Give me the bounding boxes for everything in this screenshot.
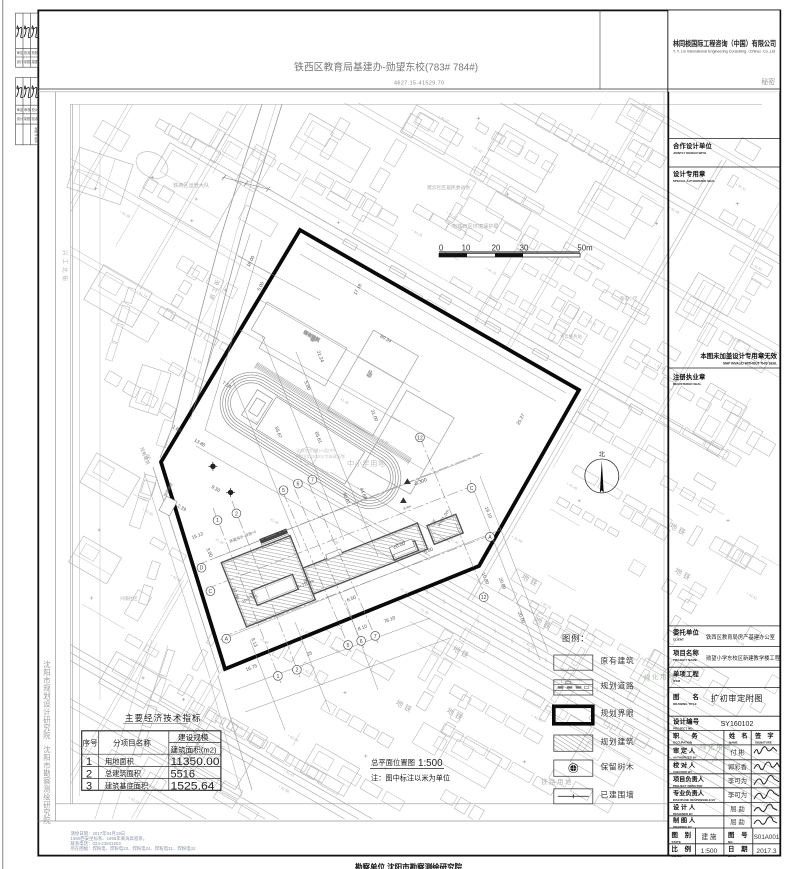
svg-text:注：图中标注以米为单位: 注：图中标注以米为单位 [371,774,450,783]
svg-text:批准: 批准 [24,50,31,55]
svg-text:审定: 审定 [17,50,24,55]
svg-text:院: 院 [43,816,51,825]
svg-text:校核: 校核 [32,50,39,55]
svg-text:分项目名称: 分项目名称 [113,738,151,748]
svg-text:郭彩香: 郭彩香 [728,762,748,771]
svg-text:20: 20 [492,244,501,253]
svg-text:SY160102: SY160102 [721,721,754,728]
svg-text:设 计 人: 设 计 人 [673,804,696,812]
svg-text:扩初审定附图: 扩初审定附图 [711,693,763,703]
svg-text:CLIENT: CLIENT [673,637,684,641]
svg-text:总建筑面积: 总建筑面积 [105,769,141,778]
svg-text:姓 名: 姓 名 [728,732,748,740]
svg-text:市铁西区环境保护局: 市铁西区环境保护局 [452,222,499,230]
svg-text:绿化用地: 绿化用地 [644,672,676,681]
svg-text:ITEM: ITEM [673,679,681,683]
svg-text:规划界限: 规划界限 [601,708,635,718]
svg-text:建设规模: 建设规模 [178,732,209,742]
svg-text:7: 7 [374,634,377,640]
svg-text:制 图 人: 制 图 人 [673,816,696,824]
svg-text:DISCIPLINE RESPONSIBLE BY: DISCIPLINE RESPONSIBLE BY [673,798,716,802]
svg-text:制图: 制图 [24,59,31,64]
svg-text:李可为: 李可为 [728,776,747,785]
svg-text:6: 6 [296,482,299,488]
svg-text:审 定 人: 审 定 人 [673,747,696,755]
svg-text:5516: 5516 [171,768,195,780]
svg-text:李可为: 李可为 [728,790,747,799]
svg-text:审核: 审核 [24,107,31,112]
svg-text:50m: 50m [577,244,592,253]
svg-text:DRAWING BY: DRAWING BY [673,825,692,829]
svg-text:SIGNATURE: SIGNATURE [755,741,772,745]
svg-text:12: 12 [417,435,423,441]
svg-text:1: 1 [216,518,219,524]
svg-text:NO.: NO. [728,840,734,844]
svg-text:签 字: 签 字 [754,732,774,740]
svg-text:6: 6 [360,639,363,645]
svg-text:合作设计单位: 合作设计单位 [672,141,712,150]
svg-text:林同棪国际工程咨询（中国）有限公司: 林同棪国际工程咨询（中国）有限公司 [673,38,776,48]
svg-text:院: 院 [43,731,51,740]
svg-text:A: A [488,535,492,541]
svg-text:T. Y. Lin International Engine: T. Y. Lin International Engineering Cons… [673,49,775,54]
svg-text:1:500: 1:500 [701,848,718,855]
svg-text:S01A001: S01A001 [754,834,780,841]
svg-text:绿化用地: 绿化用地 [700,742,732,751]
svg-text:1:500: 1:500 [418,758,443,769]
svg-text:热电小区: 热电小区 [620,295,638,302]
svg-text:D: D [200,566,204,572]
svg-text:验收: 验收 [32,116,39,121]
svg-text:项目名称: 项目名称 [673,648,699,657]
svg-text:PROJECT NAME: PROJECT NAME [673,658,697,662]
svg-text:屈 勐: 屈 勐 [730,804,745,813]
svg-text:用地面积: 用地面积 [105,757,134,766]
svg-text:JOINTLY DESIGN WITH: JOINTLY DESIGN WITH [673,151,706,155]
svg-text:图 号: 图 号 [728,830,748,839]
svg-text:DATE: DATE [728,854,736,858]
svg-text:日 期: 日 期 [728,844,748,853]
svg-text:2: 2 [295,668,298,674]
svg-text:2: 2 [235,511,238,517]
svg-text:SCALE: SCALE [672,854,682,858]
svg-text:铁西区教育局基建办-勋望东校(783# 784#): 铁西区教育局基建办-勋望东校(783# 784#) [294,61,478,74]
svg-text:图例：: 图例： [562,633,590,643]
svg-text:铁西区运管大队: 铁西区运管大队 [173,181,210,189]
svg-text:注册执业章: 注册执业章 [673,372,706,381]
svg-text:原有建筑: 原有建筑 [601,656,635,666]
svg-text:2017.3: 2017.3 [756,848,777,855]
svg-text:勋望小学东校区新建教学楼工程: 勋望小学东校区新建教学楼工程 [706,654,780,662]
svg-text:委托单位: 委托单位 [673,628,699,637]
svg-text:PROJECT DIRECTOR: PROJECT DIRECTOR [673,784,703,788]
svg-text:勘察单位 沈阳市勘察测绘研究院: 勘察单位 沈阳市勘察测绘研究院 [355,862,463,869]
svg-text:C: C [470,486,474,492]
svg-text:已建围墙: 已建围墙 [601,790,635,800]
svg-text:CHECKED BY: CHECKED BY [673,770,692,774]
svg-text:SPECIAL AUTHORIZED SEAL: SPECIAL AUTHORIZED SEAL [673,179,715,183]
svg-text:北: 北 [599,451,606,459]
svg-text:铁西区教育局房产基建办公室: 铁西区教育局房产基建办公室 [706,633,775,641]
svg-text:秘密: 秘密 [761,77,775,86]
svg-text:1525.64: 1525.64 [171,780,215,792]
svg-text:4627.15-41529.70: 4627.15-41529.70 [394,81,444,87]
svg-text:DESIGNED BY: DESIGNED BY [673,812,693,816]
svg-text:DRAWING TITLE: DRAWING TITLE [673,702,697,706]
svg-text:建 施: 建 施 [701,832,716,841]
svg-text:校对: 校对 [32,107,39,112]
svg-text:5: 5 [282,488,285,494]
svg-text:主要经济技术指标: 主要经济技术指标 [125,713,202,723]
svg-text:沈政国用(2000)-字体政英等: 沈政国用(2000)-字体政英等 [294,453,345,460]
svg-text:描图: 描图 [32,59,39,64]
svg-text:审图专用章: 审图专用章 [34,127,39,144]
svg-text:铁路用地: 铁路用地 [541,777,573,786]
svg-text:专业负责人: 专业负责人 [673,790,705,798]
svg-text:单项工程: 单项工程 [673,669,699,678]
svg-text:项目负责人: 项目负责人 [673,775,705,783]
svg-text:3: 3 [86,780,92,792]
svg-text:7: 7 [311,478,314,484]
svg-text:建云社区居民委员会: 建云社区居民委员会 [427,184,470,191]
svg-text:REGISTERED SEAL: REGISTERED SEAL [673,382,702,386]
svg-text:AUTHORIZED BY: AUTHORIZED BY [673,755,697,759]
svg-text:序号: 序号 [83,738,99,748]
svg-text:图 别: 图 别 [672,830,692,839]
svg-text:2: 2 [86,768,92,780]
svg-text:设计: 设计 [17,59,24,64]
svg-text:付 彬: 付 彬 [730,747,745,756]
svg-text:职 务: 职 务 [673,732,699,740]
svg-text:A: A [225,637,229,643]
svg-text:校 对 人: 校 对 人 [673,761,696,769]
svg-text:11350.00: 11350.00 [171,756,220,768]
svg-text:OCCUPATION: OCCUPATION [673,741,692,745]
svg-text:设计编号: 设计编号 [673,717,700,726]
svg-text:兴工北街: 兴工北街 [61,250,69,284]
svg-text:C: C [209,589,213,595]
svg-text:NAME: NAME [729,741,738,745]
svg-text:所在图幅：焊粉电、焊粉电23、焊粉电24、焊粉电31、焊粉电: 所在图幅：焊粉电、焊粉电23、焊粉电24、焊粉电31、焊粉电32 [71,845,196,852]
svg-text:建筑面积(m2): 建筑面积(m2) [171,745,217,755]
svg-text:图 名: 图 名 [673,692,699,701]
svg-text:设计: 设计 [17,116,24,121]
svg-text:STATE: STATE [672,840,681,844]
svg-text:12: 12 [481,595,487,601]
svg-text:PROJECT NO.: PROJECT NO. [673,726,694,730]
svg-text:总平面位置图: 总平面位置图 [371,757,415,767]
svg-text:规划建筑: 规划建筑 [601,737,635,747]
svg-text:本图未加盖设计专用章无效: 本图未加盖设计专用章无效 [700,351,777,360]
svg-text:比 例: 比 例 [672,844,692,853]
svg-text:5: 5 [347,643,350,649]
svg-text:审定: 审定 [17,107,24,112]
svg-text:10: 10 [462,244,471,253]
svg-text:规划道路: 规划道路 [601,681,635,691]
svg-text:建筑基底面积: 建筑基底面积 [105,781,148,790]
svg-text:青云换热站: 青云换热站 [560,333,583,340]
svg-text:屈 勐: 屈 勐 [730,817,745,826]
svg-text:保留树木: 保留树木 [601,762,635,772]
svg-text:1: 1 [276,674,279,680]
svg-text:1: 1 [86,756,92,768]
svg-text:制图: 制图 [24,116,31,121]
svg-text:0: 0 [439,244,444,253]
svg-text:兴顺社区: 兴顺社区 [120,595,138,602]
svg-text:设计专用章: 设计专用章 [673,169,706,178]
svg-text:MAP INVALID WITHOUT THIS S: MAP INVALID WITHOUT THIS SEAL [723,362,777,366]
svg-text:30: 30 [520,244,529,253]
svg-text:沈政地字(薄)-A类(中): 沈政地字(薄)-A类(中) [296,447,336,454]
